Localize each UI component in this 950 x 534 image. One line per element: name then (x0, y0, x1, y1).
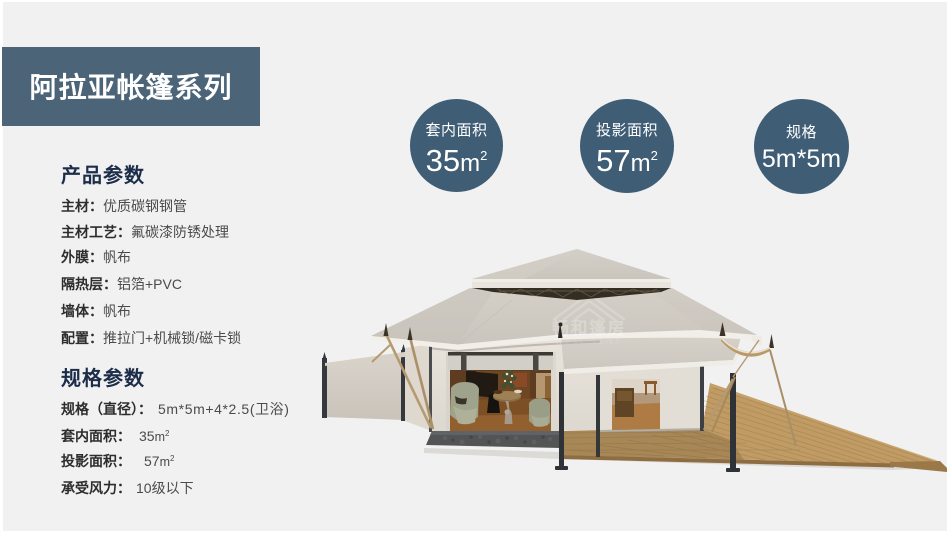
svg-text:WELL TENT: WELL TENT (556, 337, 623, 346)
svg-text:畅和篷房: 畅和篷房 (552, 318, 626, 338)
